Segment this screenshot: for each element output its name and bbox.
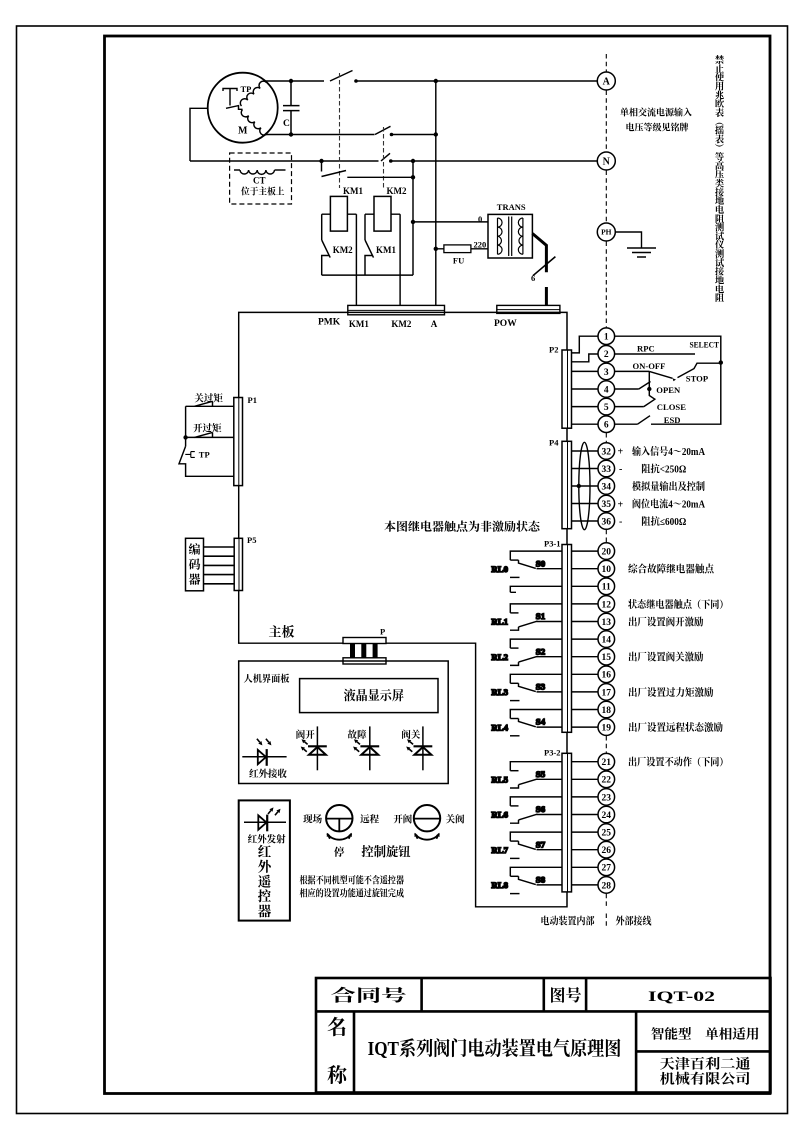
svg-text:IQT-02: IQT-02	[648, 989, 715, 1005]
svg-text:禁止使用兆欧表摇表等高压类接地电阻测试仪测试接地电阻: 禁止使用兆欧表摇表等高压类接地电阻测试仪测试接地电阻	[715, 54, 725, 304]
svg-text:33: 33	[602, 465, 612, 475]
svg-text:S8: S8	[536, 875, 546, 885]
svg-text:RL0: RL0	[491, 564, 508, 574]
svg-text:P1: P1	[248, 395, 257, 405]
svg-text:5: 5	[604, 403, 609, 413]
svg-text:22: 22	[602, 776, 612, 786]
svg-text:天津百利二通: 天津百利二通	[660, 1056, 752, 1072]
svg-text:控制旋钮: 控制旋钮	[361, 844, 411, 859]
svg-text:P4: P4	[549, 438, 559, 448]
svg-text:模拟量输出及控制: 模拟量输出及控制	[632, 480, 705, 493]
svg-text:KM2: KM2	[391, 319, 411, 329]
svg-text:CLOSE: CLOSE	[657, 402, 686, 412]
svg-text:人机界面板: 人机界面板	[244, 673, 290, 685]
svg-text:RL1: RL1	[491, 617, 508, 627]
svg-text:4: 4	[604, 385, 609, 395]
svg-text:RL2: RL2	[491, 652, 508, 662]
svg-text:红外接收: 红外接收	[249, 768, 288, 780]
svg-text:KM2: KM2	[387, 186, 407, 196]
svg-text:外部接线: 外部接线	[616, 915, 652, 928]
svg-text:）: ）	[713, 143, 724, 152]
svg-text:SELECT: SELECT	[690, 340, 720, 350]
svg-text:出厂设置阀关激励: 出厂设置阀关激励	[628, 651, 704, 664]
svg-text:POW: POW	[494, 319, 517, 329]
svg-text:关阀: 关阀	[446, 813, 466, 825]
svg-text:220: 220	[474, 240, 487, 250]
svg-text:（: （	[713, 117, 724, 126]
svg-text:S3: S3	[536, 682, 546, 692]
svg-text:RPC: RPC	[637, 344, 655, 354]
svg-text:关过矩: 关过矩	[194, 393, 223, 405]
svg-text:编码器: 编码器	[188, 542, 200, 587]
svg-text:阀关: 阀关	[401, 729, 421, 741]
svg-text:RL6: RL6	[491, 810, 508, 820]
svg-text:状态继电器触点（下同）: 状态继电器触点（下同）	[628, 598, 729, 611]
svg-text:13: 13	[602, 618, 612, 628]
svg-text:机械有限公司: 机械有限公司	[660, 1071, 751, 1087]
svg-text:19: 19	[602, 724, 612, 734]
svg-text:出厂设置阀开激励: 出厂设置阀开激励	[628, 616, 704, 629]
svg-text:23: 23	[602, 793, 612, 803]
svg-text:28: 28	[602, 881, 612, 891]
svg-text:32: 32	[602, 447, 612, 457]
svg-text:27: 27	[602, 864, 612, 874]
svg-text:合同号: 合同号	[331, 985, 408, 1005]
svg-text:FU: FU	[453, 256, 464, 266]
svg-text:0: 0	[478, 214, 482, 224]
svg-text:-: -	[619, 516, 622, 527]
svg-text:26: 26	[602, 846, 612, 856]
svg-text:阻抗<250Ω: 阻抗<250Ω	[641, 462, 686, 475]
svg-text:RL8: RL8	[491, 880, 508, 890]
svg-text:20: 20	[602, 548, 612, 558]
svg-text:2: 2	[604, 350, 609, 360]
svg-text:主板: 主板	[269, 625, 295, 640]
svg-text:CT: CT	[253, 176, 266, 186]
svg-text:6: 6	[604, 421, 609, 431]
svg-text:出厂设置过力矩激励: 出厂设置过力矩激励	[628, 686, 714, 699]
svg-text:18: 18	[602, 706, 612, 716]
svg-text:S6: S6	[536, 804, 546, 814]
svg-text:ESD: ESD	[664, 415, 681, 425]
svg-text:根据不同机型可能不含遥控器: 根据不同机型可能不含遥控器	[300, 875, 405, 887]
svg-text:+: +	[618, 499, 624, 510]
svg-text:+: +	[618, 447, 624, 458]
svg-text:STOP: STOP	[686, 374, 708, 384]
svg-text:单相交流电源输入: 单相交流电源输入	[620, 107, 693, 119]
svg-text:P: P	[380, 627, 385, 637]
svg-text:S1: S1	[536, 611, 545, 621]
svg-text:KM1: KM1	[343, 186, 363, 196]
svg-text:S5: S5	[536, 769, 546, 779]
svg-text:液晶显示屏: 液晶显示屏	[344, 688, 404, 703]
svg-text:A: A	[603, 77, 611, 88]
svg-text:12: 12	[602, 600, 612, 610]
svg-text:S0: S0	[536, 558, 546, 568]
svg-text:IQT系列阀门电动装置电气原理图: IQT系列阀门电动装置电气原理图	[368, 1037, 622, 1060]
svg-text:35: 35	[602, 500, 612, 510]
svg-text:出厂设置不动作（下同）: 出厂设置不动作（下同）	[628, 756, 729, 769]
svg-text:相应的设置功能通过旋钮完成: 相应的设置功能通过旋钮完成	[300, 888, 405, 900]
svg-text:P2: P2	[549, 345, 558, 355]
svg-text:OPEN: OPEN	[656, 385, 681, 395]
svg-text:P3-1: P3-1	[544, 539, 561, 549]
svg-text:M: M	[238, 126, 248, 137]
svg-text:ON-OFF: ON-OFF	[633, 361, 666, 371]
svg-text:PMK: PMK	[318, 318, 341, 328]
svg-text:KM2: KM2	[333, 245, 353, 255]
svg-text:14: 14	[602, 636, 612, 646]
svg-text:11: 11	[602, 583, 611, 593]
svg-text:RL7: RL7	[491, 845, 508, 855]
svg-text:远程: 远程	[360, 813, 380, 825]
svg-text:TP: TP	[241, 84, 252, 94]
svg-text:阀开: 阀开	[296, 729, 316, 741]
svg-text:RL4: RL4	[491, 722, 508, 732]
svg-text:阻抗≤600Ω: 阻抗≤600Ω	[641, 515, 686, 528]
svg-text:10: 10	[602, 565, 612, 575]
svg-text:17: 17	[602, 688, 612, 698]
svg-text:A: A	[431, 319, 438, 329]
svg-text:名: 名	[327, 1016, 347, 1039]
svg-text:P3-2: P3-2	[544, 748, 561, 758]
svg-text:S7: S7	[536, 839, 546, 849]
svg-text:TRANS: TRANS	[497, 202, 526, 212]
svg-text:电动装置内部: 电动装置内部	[541, 915, 595, 928]
svg-text:输入信号4～20mA: 输入信号4～20mA	[632, 445, 706, 458]
svg-text:现场: 现场	[303, 813, 323, 825]
svg-text:停: 停	[334, 846, 345, 859]
svg-text:-: -	[619, 464, 622, 475]
svg-text:21: 21	[602, 758, 612, 768]
svg-text:红外遥控器: 红外遥控器	[258, 845, 273, 920]
svg-text:智能型 单相适用: 智能型 单相适用	[651, 1027, 760, 1042]
svg-text:1: 1	[604, 333, 609, 343]
svg-text:6: 6	[531, 273, 535, 283]
svg-text:C: C	[283, 119, 290, 129]
svg-text:开阀: 开阀	[393, 813, 413, 825]
svg-text:15: 15	[602, 653, 612, 663]
svg-text:25: 25	[602, 829, 612, 839]
svg-text:RL3: RL3	[491, 687, 508, 697]
svg-text:图号: 图号	[550, 986, 582, 1005]
svg-text:S4: S4	[536, 717, 546, 727]
svg-text:36: 36	[602, 517, 612, 527]
svg-text:红外发射: 红外发射	[248, 833, 287, 845]
svg-text:称: 称	[327, 1064, 349, 1087]
svg-text:N: N	[603, 157, 611, 168]
svg-text:3: 3	[604, 368, 609, 378]
svg-text:本图继电器触点为非激励状态: 本图继电器触点为非激励状态	[384, 520, 541, 534]
svg-text:位于主板上: 位于主板上	[241, 186, 285, 197]
svg-text:开过矩: 开过矩	[193, 423, 222, 435]
svg-text:阀位电流4～20mA: 阀位电流4～20mA	[632, 497, 706, 510]
svg-text:RL5: RL5	[491, 775, 508, 785]
svg-text:电压等级见铭牌: 电压等级见铭牌	[626, 122, 689, 134]
svg-text:综合故障继电器触点: 综合故障继电器触点	[628, 563, 715, 576]
svg-text:34: 34	[602, 482, 612, 492]
svg-text:KM1: KM1	[376, 245, 396, 255]
svg-text:PH: PH	[601, 228, 612, 237]
svg-text:故障: 故障	[348, 729, 368, 741]
svg-text:出厂设置远程状态激励: 出厂设置远程状态激励	[628, 721, 723, 734]
svg-text:TP: TP	[199, 450, 210, 460]
svg-text:24: 24	[602, 811, 612, 821]
svg-text:P5: P5	[247, 535, 256, 545]
svg-text:KM1: KM1	[349, 319, 369, 329]
svg-text:16: 16	[602, 671, 612, 681]
svg-text:S2: S2	[536, 646, 546, 656]
